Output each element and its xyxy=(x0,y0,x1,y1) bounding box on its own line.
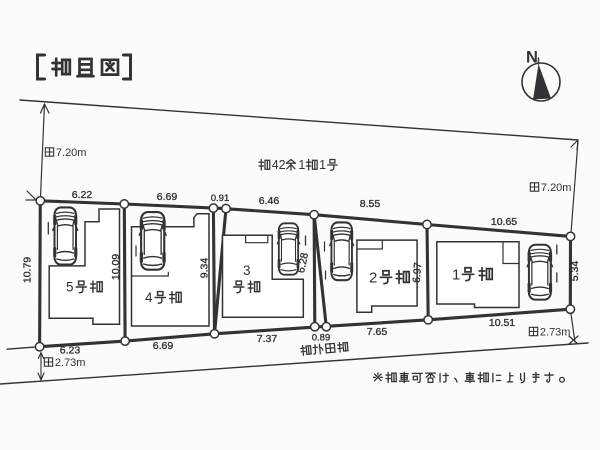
svg-text:0.91: 0.91 xyxy=(211,193,230,204)
svg-text:10.09: 10.09 xyxy=(110,254,122,280)
svg-text:6.46: 6.46 xyxy=(259,195,280,207)
svg-text:6.69: 6.69 xyxy=(157,191,178,203)
svg-text:1: 1 xyxy=(452,266,460,283)
svg-text:2.73m: 2.73m xyxy=(55,357,86,369)
svg-text:10.65: 10.65 xyxy=(491,216,517,228)
svg-text:9.34: 9.34 xyxy=(199,258,211,279)
svg-text:1: 1 xyxy=(319,158,326,172)
svg-text:0.89: 0.89 xyxy=(312,333,331,344)
svg-text:6.69: 6.69 xyxy=(153,340,174,352)
svg-text:8.55: 8.55 xyxy=(360,198,381,210)
svg-text:10.79: 10.79 xyxy=(22,257,34,283)
svg-text:7.37: 7.37 xyxy=(257,333,278,345)
svg-text:4: 4 xyxy=(145,290,153,305)
svg-text:5.34: 5.34 xyxy=(569,261,581,282)
svg-text:7.20m: 7.20m xyxy=(56,147,87,159)
svg-text:6.22: 6.22 xyxy=(72,189,93,201)
svg-text:1: 1 xyxy=(298,158,305,172)
svg-text:2.73m: 2.73m xyxy=(540,327,571,339)
svg-text:5: 5 xyxy=(66,280,74,295)
svg-text:6.23: 6.23 xyxy=(60,345,81,357)
svg-text:7.20m: 7.20m xyxy=(541,182,572,194)
svg-text:10.51: 10.51 xyxy=(489,317,515,329)
svg-text:2: 2 xyxy=(369,269,377,286)
svg-text:7.65: 7.65 xyxy=(367,326,388,338)
svg-text:N: N xyxy=(526,49,538,67)
svg-text:3: 3 xyxy=(243,263,251,278)
svg-text:6.97: 6.97 xyxy=(411,262,425,284)
svg-text:42: 42 xyxy=(272,158,286,172)
